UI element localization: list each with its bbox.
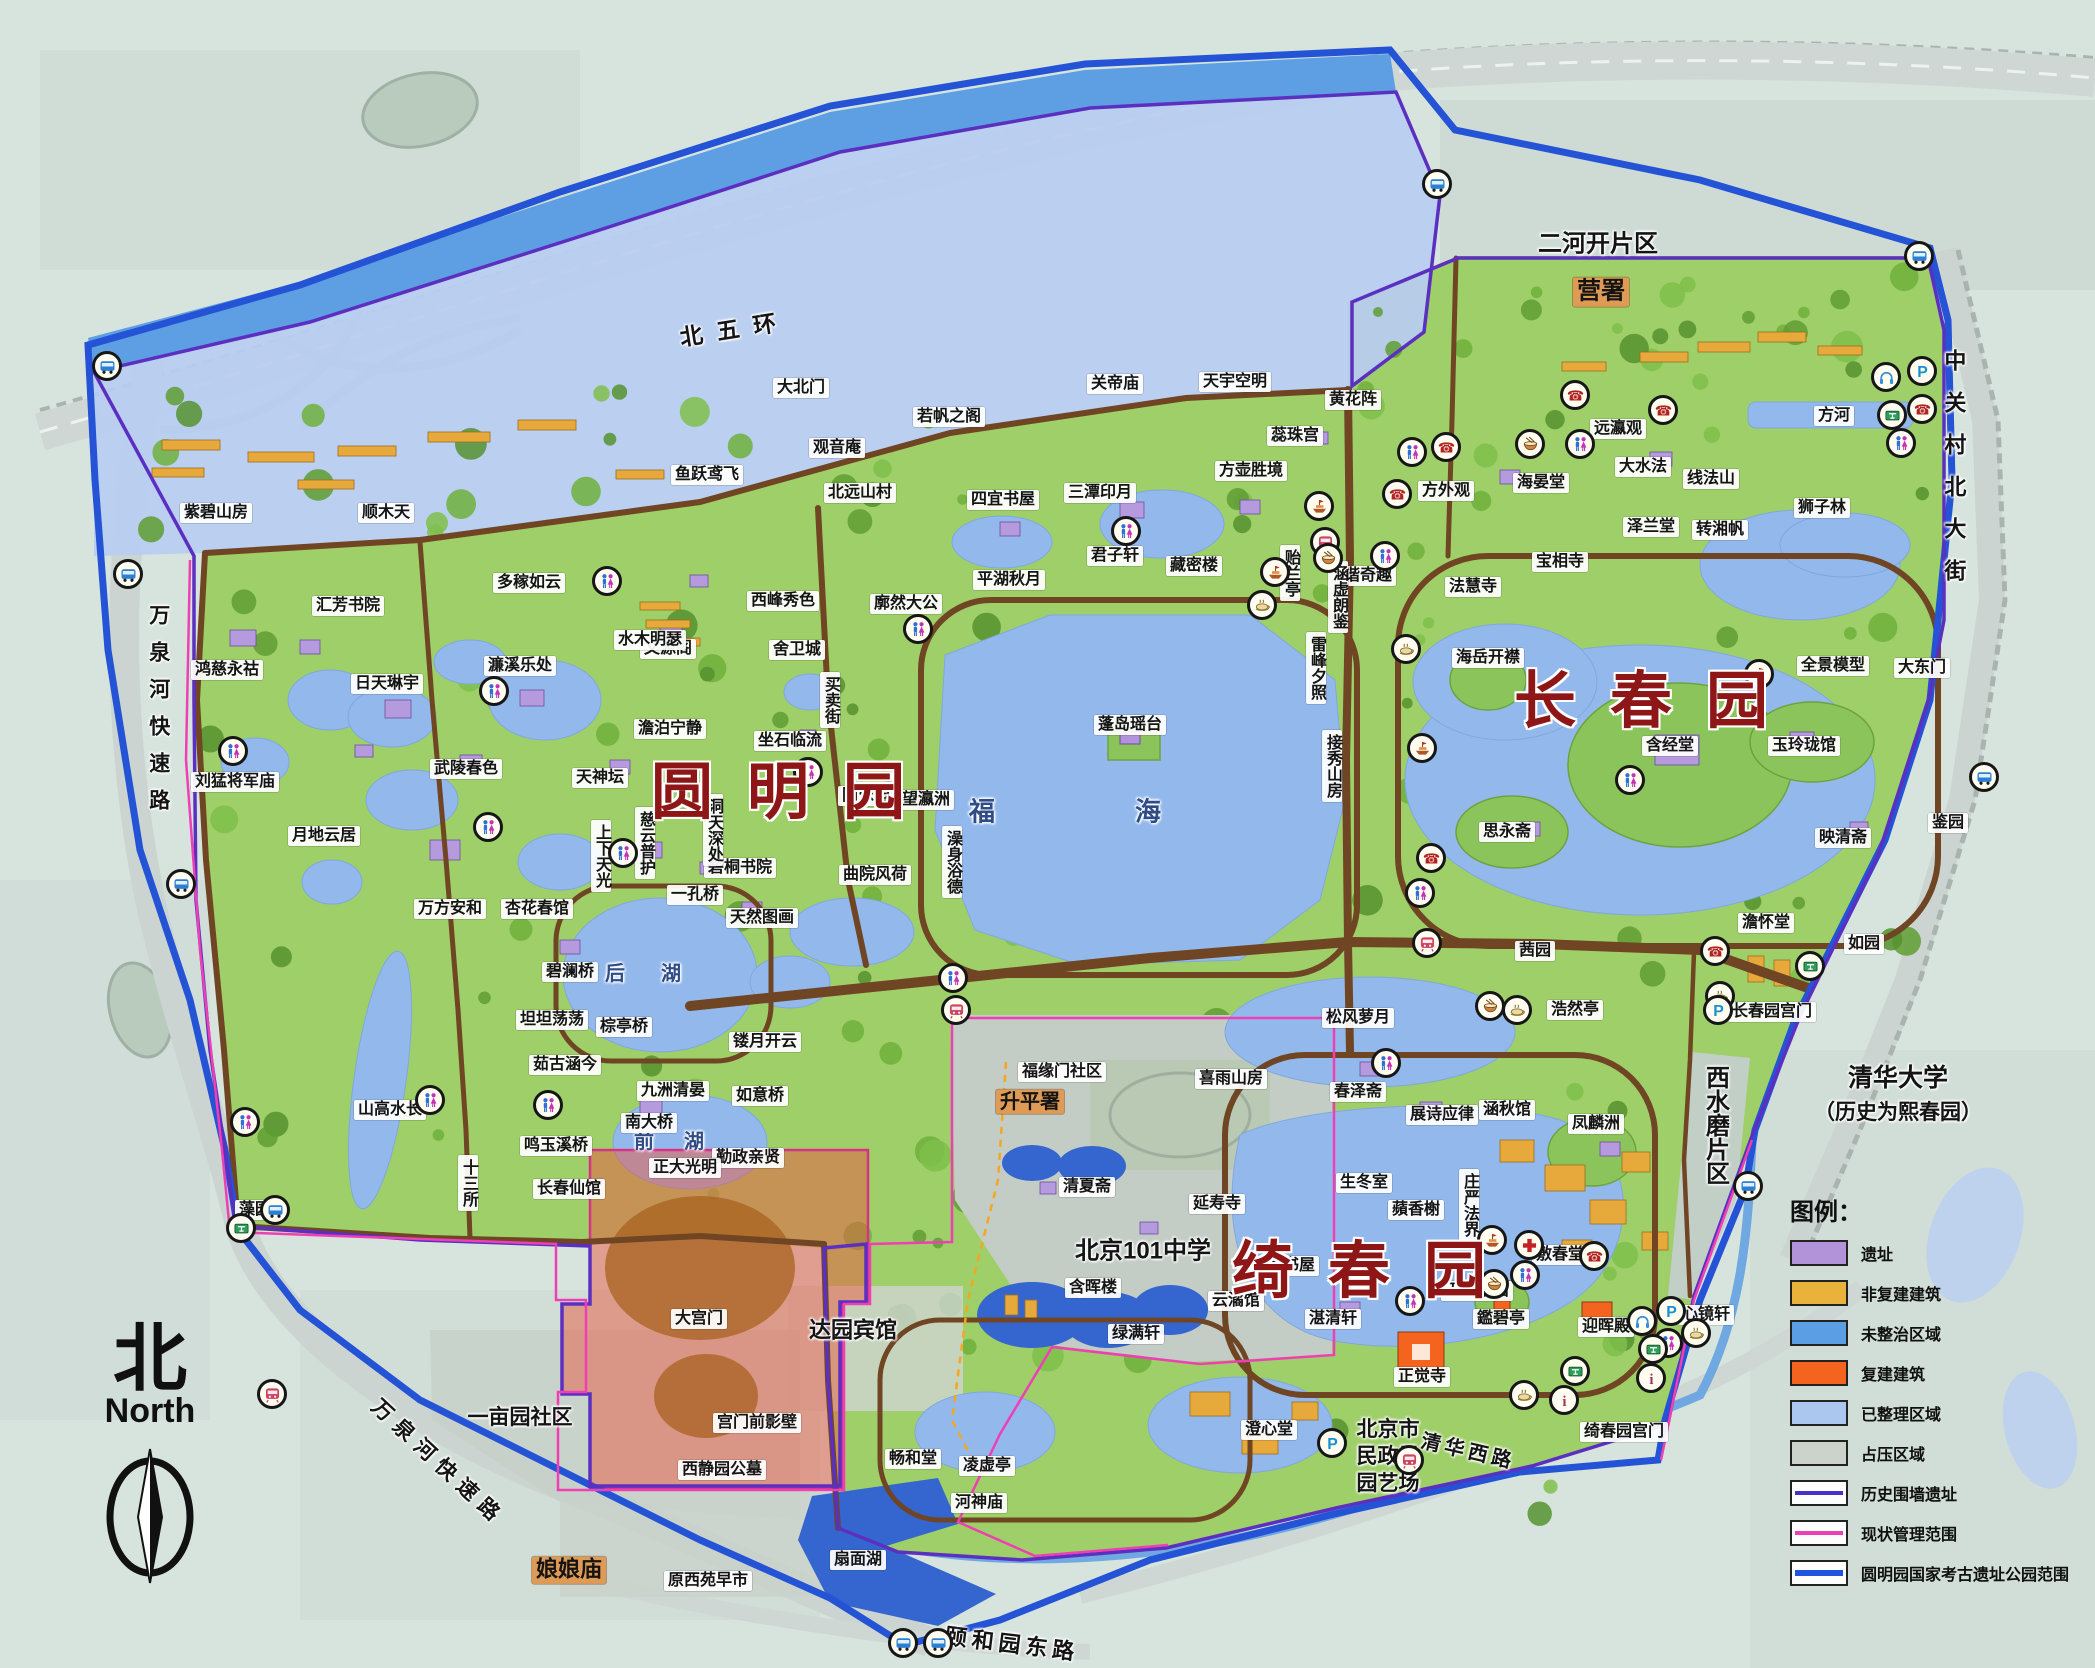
legend-item: 现状管理范围 bbox=[1790, 1519, 2090, 1546]
legend-swatch bbox=[1790, 1280, 1848, 1306]
legend-item: 遗址 bbox=[1790, 1239, 2090, 1266]
legend-swatch bbox=[1790, 1480, 1848, 1506]
lake-fanghe bbox=[1748, 402, 1913, 428]
legend-label: 占压区域 bbox=[1861, 1441, 1925, 1465]
legend-label: 已整理区域 bbox=[1861, 1401, 1941, 1425]
legend-swatch bbox=[1790, 1400, 1848, 1426]
legend-item: 未整治区域 bbox=[1790, 1319, 2090, 1346]
map-canvas: 紫碧山房顺木天汇芳书院多稼如云鸿慈永祜文源阁西峰秀色鱼跃鸢飞大北门观音庵若帆之阁… bbox=[0, 0, 2095, 1668]
legend-swatch bbox=[1790, 1320, 1848, 1346]
lake-fuhai bbox=[935, 615, 1345, 965]
legend-item: 复建建筑 bbox=[1790, 1359, 2090, 1386]
legend-label: 圆明园国家考古遗址公园范围 bbox=[1861, 1561, 2069, 1585]
legend-item: 非复建建筑 bbox=[1790, 1279, 2090, 1306]
legend-item: 圆明园国家考古遗址公园范围 bbox=[1790, 1559, 2090, 1586]
legend-swatch bbox=[1790, 1240, 1848, 1266]
compass: 北 North bbox=[70, 1322, 230, 1590]
lake-houhu bbox=[563, 898, 757, 1052]
legend-swatch bbox=[1790, 1440, 1848, 1466]
legend-label: 现状管理范围 bbox=[1861, 1521, 1957, 1545]
legend-item: 占压区域 bbox=[1790, 1439, 2090, 1466]
compass-north-label-zh: 北 bbox=[70, 1322, 230, 1396]
compass-north-label-en: North bbox=[70, 1392, 230, 1431]
compass-needle-icon bbox=[102, 1445, 198, 1585]
legend-item: 历史围墙遗址 bbox=[1790, 1479, 2090, 1506]
legend-item: 已整理区域 bbox=[1790, 1399, 2090, 1426]
map-terrain bbox=[0, 0, 2095, 1668]
legend-swatch bbox=[1790, 1360, 1848, 1386]
legend-swatch bbox=[1790, 1560, 1848, 1586]
legend-title: 图例： bbox=[1790, 1192, 2090, 1227]
legend-label: 历史围墙遗址 bbox=[1861, 1481, 1957, 1505]
legend: 图例： 遗址非复建建筑未整治区域复建建筑已整理区域占压区域历史围墙遗址现状管理范… bbox=[1790, 1192, 2090, 1599]
legend-label: 复建建筑 bbox=[1861, 1361, 1925, 1385]
legend-label: 非复建建筑 bbox=[1861, 1281, 1941, 1305]
legend-label: 遗址 bbox=[1861, 1241, 1893, 1265]
legend-swatch bbox=[1790, 1520, 1848, 1546]
legend-label: 未整治区域 bbox=[1861, 1321, 1941, 1345]
legend-items: 遗址非复建建筑未整治区域复建建筑已整理区域占压区域历史围墙遗址现状管理范围圆明园… bbox=[1790, 1239, 2090, 1586]
